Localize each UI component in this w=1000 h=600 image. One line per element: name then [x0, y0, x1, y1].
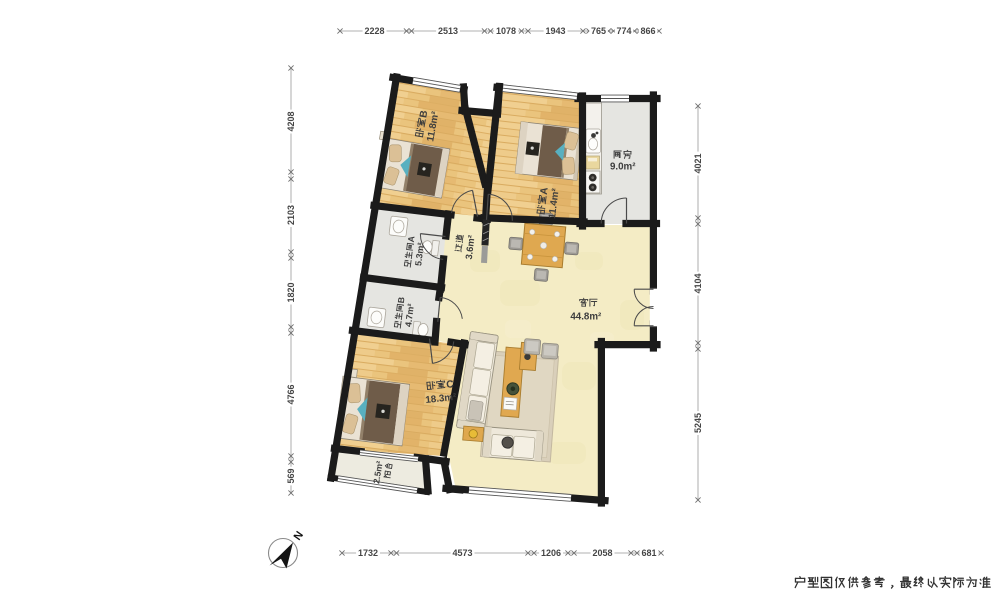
svg-text:4104: 4104 — [693, 273, 703, 293]
svg-text:2513: 2513 — [438, 26, 458, 36]
svg-text:9.0m²: 9.0m² — [610, 161, 636, 172]
svg-text:4766: 4766 — [286, 384, 296, 404]
svg-text:2103: 2103 — [286, 205, 296, 225]
svg-text:B: B — [396, 296, 407, 303]
svg-text:765: 765 — [591, 26, 606, 36]
svg-text:5245: 5245 — [693, 413, 703, 433]
svg-text:4208: 4208 — [286, 111, 296, 131]
svg-text:681: 681 — [641, 548, 656, 558]
svg-text:2058: 2058 — [592, 548, 612, 558]
svg-text:1206: 1206 — [541, 548, 561, 558]
svg-text:44.8m²: 44.8m² — [570, 311, 602, 322]
svg-text:774: 774 — [616, 26, 631, 36]
svg-text:569: 569 — [286, 468, 296, 483]
svg-text:1820: 1820 — [286, 282, 296, 302]
svg-text:866: 866 — [640, 26, 655, 36]
svg-text:1732: 1732 — [358, 548, 378, 558]
svg-text:1078: 1078 — [496, 26, 516, 36]
svg-text:4021: 4021 — [693, 153, 703, 173]
svg-text:2228: 2228 — [364, 26, 384, 36]
svg-text:1943: 1943 — [545, 26, 565, 36]
svg-text:4573: 4573 — [452, 548, 472, 558]
